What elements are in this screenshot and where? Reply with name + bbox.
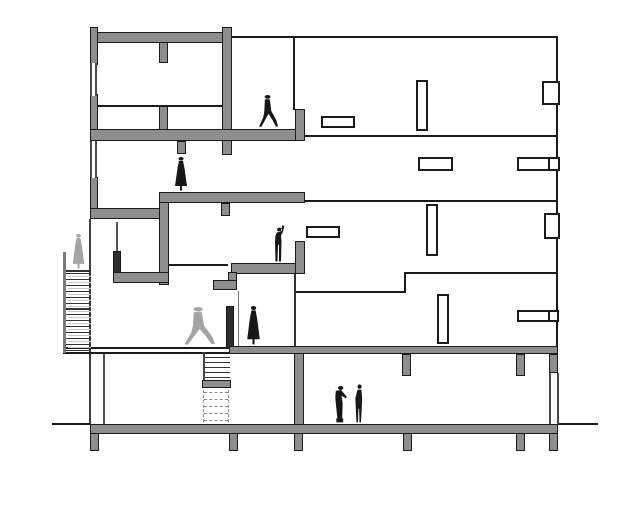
floor2-line [303, 135, 558, 137]
roof-hanging-wall [159, 42, 168, 63]
window [437, 294, 449, 344]
foundation-pier [403, 433, 412, 451]
person-walking-ground [181, 307, 215, 347]
floor3-line [303, 200, 558, 202]
roof-edge-line [231, 36, 558, 38]
viewing-platform-slab [231, 263, 305, 274]
window [544, 213, 560, 239]
hanging-stub-c [221, 203, 230, 216]
basement-stair-tread [205, 362, 230, 363]
person-raised-arm [269, 225, 289, 263]
building-section-drawing [0, 0, 635, 515]
person-walking-icon [259, 95, 278, 127]
left-stair-platform-line [66, 270, 91, 272]
left-exterior-stair-tread [66, 285, 91, 286]
glazing-left-upper [90, 63, 97, 96]
left-exterior-stair-tread [66, 297, 91, 298]
column-stub [549, 354, 558, 373]
column-stub [402, 354, 411, 376]
partition-line [103, 353, 105, 425]
left-exterior-stair-riser [68, 317, 91, 318]
stair-side-wall [226, 306, 234, 349]
left-exterior-stair-riser [68, 294, 91, 295]
window [306, 226, 340, 238]
left-exterior-stair-riser [68, 311, 91, 312]
person-walking-top [257, 95, 278, 129]
left-facade-line [89, 219, 91, 425]
hidden-stair-outline-row [204, 413, 228, 414]
basement-stair-tread [205, 367, 230, 368]
left-exterior-stair-tread [66, 273, 91, 274]
hidden-stair-outline-row [204, 406, 228, 407]
mid-facade-line [293, 38, 295, 110]
person-dress-mid [171, 157, 191, 192]
foundation-pier [516, 433, 525, 451]
person-raised-arm-icon [275, 225, 285, 261]
window [548, 157, 560, 171]
hidden-stair-outline-row [204, 392, 228, 393]
hidden-stair-outline-row [204, 399, 228, 400]
hidden-stair-outline-row [204, 420, 228, 421]
left-exterior-stair-tread [66, 303, 91, 304]
ground-line-right [558, 423, 598, 425]
hanging-stub-a [177, 141, 186, 154]
window [426, 204, 438, 256]
platform-support-line [294, 274, 296, 348]
stair-wall-line [238, 291, 239, 348]
parapet-upper-right [295, 109, 305, 141]
left-exterior-stair-tread [66, 308, 91, 309]
foundation-pier [549, 433, 558, 451]
floor-slab-c [159, 192, 305, 203]
window [542, 81, 560, 105]
window [321, 116, 355, 128]
left-exterior-stair-riser [68, 300, 91, 301]
left-exterior-stair-riser [68, 282, 91, 283]
left-exterior-stair-riser [68, 335, 91, 336]
left-exterior-stair-tread [66, 279, 91, 280]
basement-stair-tread [205, 372, 230, 373]
left-exterior-stair-riser [68, 306, 91, 307]
ground-slab [90, 424, 558, 434]
foundation-pier [229, 433, 238, 451]
window [418, 157, 453, 171]
person-leaning-icon [335, 386, 347, 422]
left-exterior-stair-riser [68, 329, 91, 330]
floor4-low-line [296, 291, 406, 293]
left-exterior-stair-tread [66, 291, 91, 292]
left-wall-mid [90, 94, 98, 134]
person-on-stair [69, 234, 88, 270]
window [517, 157, 550, 171]
floor-slab-first [229, 346, 558, 354]
person-dress-icon [247, 306, 260, 344]
person-dress-ground [243, 306, 264, 346]
ground-line-left [52, 423, 90, 425]
left-exterior-stair-tread [66, 326, 91, 327]
person-dress-icon [73, 234, 84, 269]
rail-line-upper [116, 222, 118, 253]
foundation-pier [294, 433, 303, 451]
person-leaning-basement [329, 384, 350, 424]
window [548, 310, 559, 322]
left-parapet [90, 27, 98, 65]
person-dress-icon [175, 157, 187, 191]
floor-slab-d [113, 272, 169, 283]
platform-parapet [295, 241, 305, 274]
rail-line-mid [168, 264, 228, 266]
mid-stair-landing [202, 380, 231, 388]
floor-slab-b [90, 208, 166, 219]
left-exterior-stair-riser [68, 323, 91, 324]
column-stub [516, 354, 525, 376]
left-exterior-stair-tread [66, 338, 91, 339]
platform-step-slab [213, 280, 237, 290]
left-exterior-stair-riser [68, 276, 91, 277]
core-wall-ground [294, 351, 304, 433]
floor4-high-line [404, 272, 558, 274]
person-standing-icon [355, 384, 362, 422]
person-standing-basement [352, 384, 367, 424]
left-exterior-stair-tread [66, 344, 91, 345]
left-exterior-stair-tread [66, 320, 91, 321]
window [416, 80, 428, 131]
basement-stair-tread [205, 377, 230, 378]
person-walking-icon [184, 307, 215, 345]
foundation-pier [90, 433, 99, 451]
window [517, 310, 550, 322]
floor4-step-line [404, 272, 406, 293]
glazing-left-mid [90, 141, 97, 178]
left-exterior-stair-tread [66, 350, 91, 351]
left-exterior-stair-tread [66, 314, 91, 315]
left-exterior-stair-riser [68, 288, 91, 289]
basement-stair-tread [205, 357, 230, 358]
left-exterior-stair-riser [68, 341, 91, 342]
glazing-ground-right [549, 373, 559, 424]
floor-slab-a [90, 129, 305, 141]
left-exterior-stair-tread [66, 332, 91, 333]
left-exterior-stair-riser [68, 347, 91, 348]
